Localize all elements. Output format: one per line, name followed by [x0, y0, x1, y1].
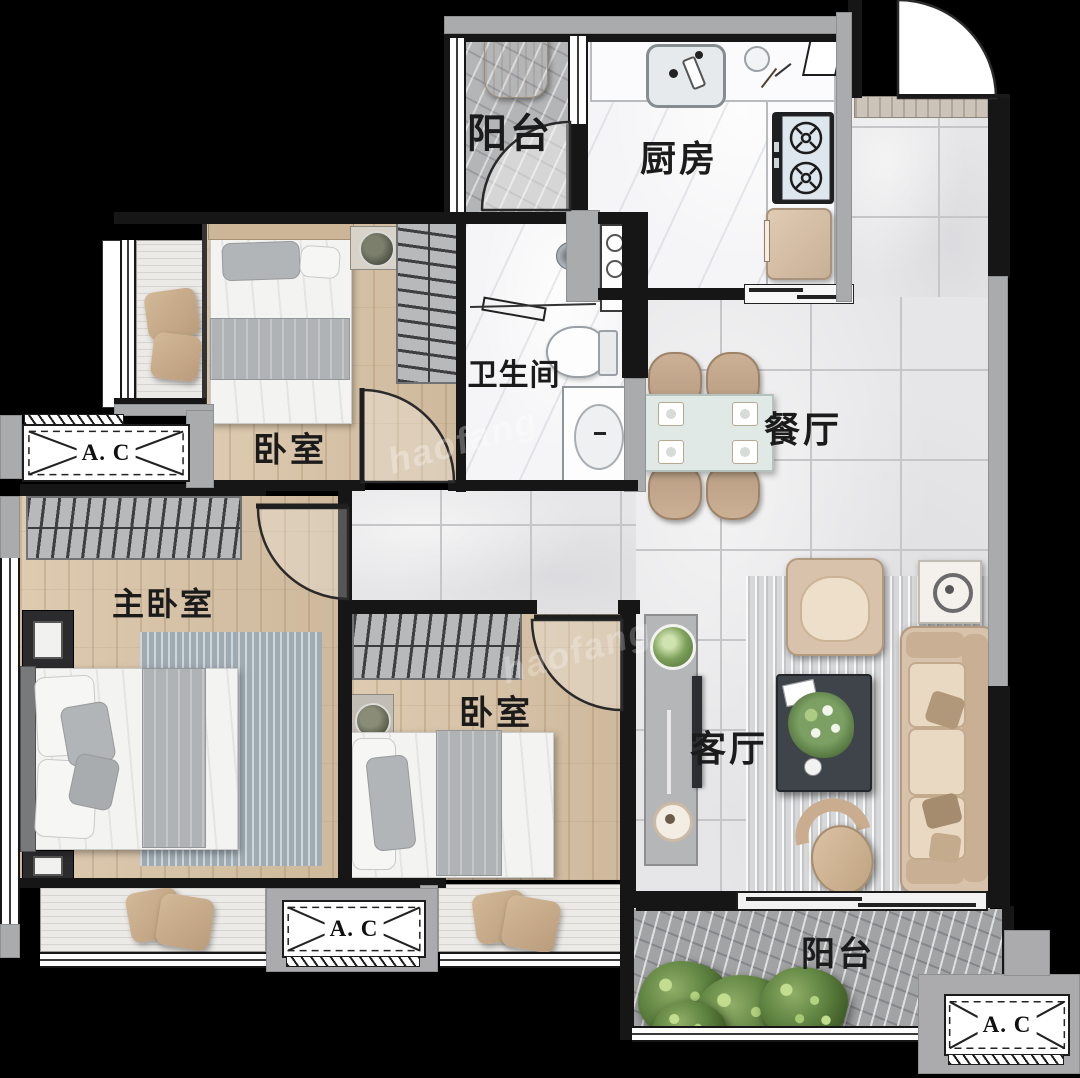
place-setting-icon: [658, 402, 684, 426]
ac-unit-left: A. C: [22, 424, 190, 482]
ac-unit-bottom: A. C: [282, 900, 426, 958]
stove: [772, 112, 834, 204]
cabinet-handle-icon: [667, 710, 671, 794]
sofa-cushion: [908, 728, 966, 796]
entry-threshold: [854, 96, 990, 118]
armchair-cushion: [800, 576, 870, 642]
plate-icon: [744, 46, 770, 72]
wall: [620, 906, 634, 1040]
slide-panel-icon: [749, 288, 803, 292]
room-label-master-bedroom: 主卧室: [112, 579, 214, 625]
wall: [988, 96, 1010, 278]
window: [568, 36, 588, 124]
bed-bottom: [348, 730, 552, 876]
ac-unit-right: A. C: [944, 994, 1070, 1056]
wall: [598, 288, 746, 300]
side-table: [918, 560, 982, 624]
room-label-balcony-top: 阳台: [467, 101, 553, 159]
wall: [0, 924, 20, 958]
cushion-icon: [500, 894, 562, 955]
wall: [444, 34, 854, 42]
photo-frame-icon: [33, 856, 63, 876]
plant-icon: [760, 967, 848, 1029]
window: [120, 240, 136, 406]
living-sliding-door: [736, 891, 988, 911]
bay-window-outer: [102, 240, 122, 408]
wall: [444, 16, 854, 34]
room-label-dining: 餐厅: [764, 401, 842, 453]
cushion-icon: [154, 892, 215, 952]
wall: [186, 410, 214, 488]
armchair: [786, 558, 884, 656]
fridge: [766, 208, 832, 280]
lamp-center-icon: [945, 585, 954, 594]
sink-basin-icon: [574, 404, 624, 470]
nightstand: [22, 850, 74, 880]
wall: [836, 12, 852, 302]
slide-panel-icon: [746, 897, 862, 901]
fridge-handle-icon: [764, 220, 770, 262]
place-setting-icon: [658, 440, 684, 464]
faucet-icon: [682, 56, 707, 91]
wardrobe-top-bedroom: [396, 222, 462, 384]
cup-icon: [804, 758, 822, 776]
ac-platform-frame: [0, 415, 22, 479]
ac-hatch-icon: [948, 1054, 1064, 1065]
door-arc-entry: [898, 0, 996, 98]
toilet-tank: [598, 330, 618, 376]
room-label-balcony-bottom: 阳台: [801, 927, 875, 976]
bookshelf-bottom-bedroom: [352, 612, 522, 680]
wall: [988, 276, 1008, 688]
room-label-bedroom-bottom: 卧室: [459, 686, 533, 735]
ac-hatch-icon: [286, 956, 420, 967]
wall: [566, 124, 588, 212]
bed-headboard: [208, 222, 354, 240]
bed-master: [20, 666, 236, 850]
dining-table: [644, 394, 774, 472]
place-setting-icon: [732, 440, 758, 464]
cushion-icon: [149, 331, 202, 383]
wall: [20, 878, 342, 888]
ac-label: A. C: [978, 1012, 1037, 1038]
place-setting-icon: [732, 402, 758, 426]
bay-window-seat: [40, 886, 266, 952]
window: [448, 38, 466, 212]
ac-platform-frame: [1004, 930, 1050, 976]
washing-machine: [484, 36, 548, 98]
room-label-living-room: 客厅: [690, 720, 768, 772]
sofa: [900, 626, 996, 894]
room-label-bathroom: 卫生间: [468, 350, 561, 394]
entry-floor: [850, 98, 988, 306]
wall: [338, 484, 352, 890]
sofa-armrest: [906, 632, 964, 658]
wall: [566, 210, 600, 302]
bay-window-seat: [136, 240, 204, 406]
nightstand: [350, 226, 398, 270]
wall: [352, 600, 537, 614]
wardrobe-master: [26, 496, 242, 560]
wall: [988, 686, 1010, 908]
faucet-icon: [594, 432, 606, 435]
pillow-icon: [928, 832, 962, 864]
kitchen-sink: [646, 44, 726, 108]
room-label-bedroom-top: 卧室: [253, 423, 327, 472]
wall: [624, 378, 646, 492]
ac-label: A. C: [325, 916, 384, 942]
blanket: [210, 318, 350, 380]
blanket: [436, 730, 502, 876]
plant-pot-icon: [359, 231, 395, 267]
floor-plan: A. C A. C A. C: [0, 0, 1080, 1078]
window: [0, 558, 20, 926]
bay-window-seat: [438, 884, 622, 952]
dish-center-icon: [665, 814, 675, 824]
coffee-table: [776, 674, 872, 792]
slide-panel-icon: [858, 903, 976, 907]
nightstand: [22, 610, 74, 670]
plant-pot-icon: [650, 624, 696, 670]
pillow-icon: [221, 241, 300, 282]
sink-drain-icon: [669, 69, 678, 78]
wall: [636, 891, 738, 911]
room-label-kitchen: 厨房: [640, 130, 718, 182]
ac-label: A. C: [77, 440, 136, 466]
window: [440, 952, 622, 968]
pillow-icon: [299, 245, 341, 280]
bed-top: [208, 222, 352, 422]
wall: [0, 496, 20, 560]
lamp-icon: [933, 573, 973, 613]
hall-floor: [352, 490, 636, 614]
blanket: [142, 668, 206, 848]
flower-bouquet-icon: [788, 692, 854, 758]
faucet-base-icon: [695, 51, 703, 59]
wall: [20, 484, 266, 496]
wall: [448, 480, 638, 491]
wall: [114, 212, 566, 224]
window: [40, 952, 266, 968]
photo-frame-icon: [33, 621, 63, 659]
